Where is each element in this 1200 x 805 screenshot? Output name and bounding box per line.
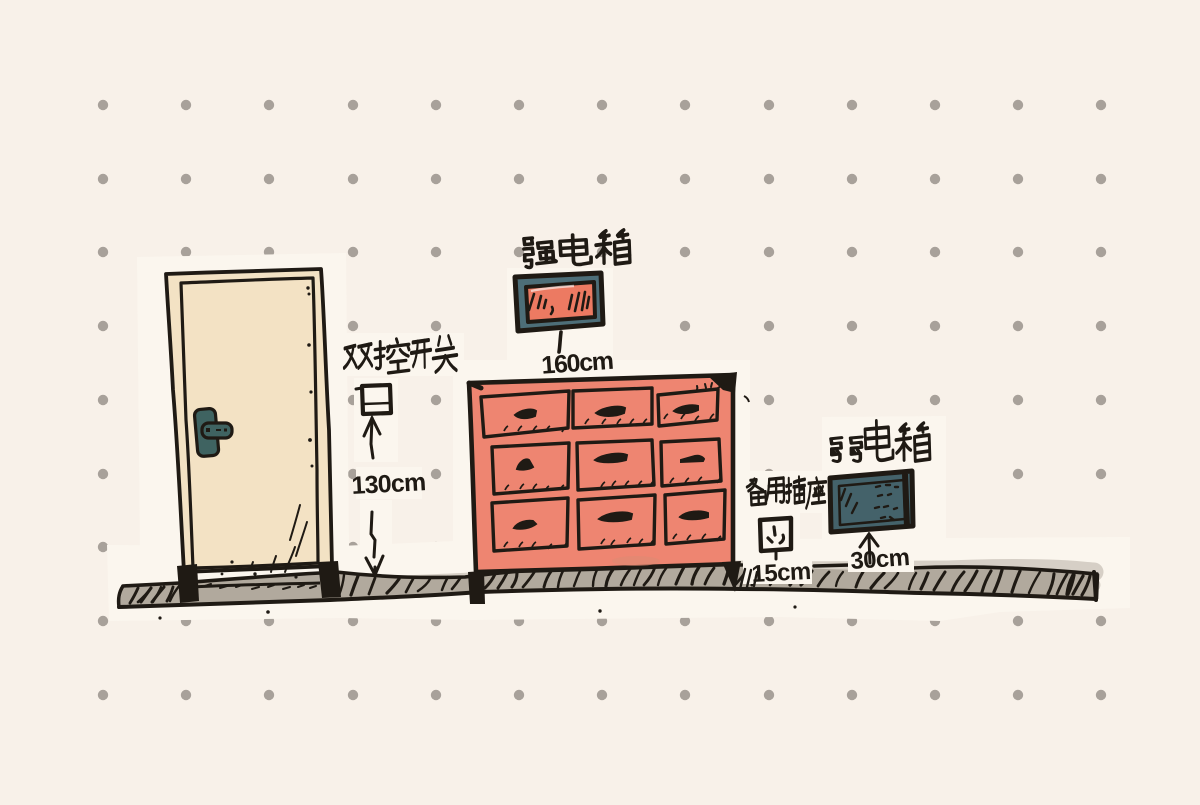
svg-text:15cm: 15cm (751, 558, 811, 588)
svg-text:30cm: 30cm (850, 544, 911, 575)
svg-text:160cm: 160cm (540, 347, 613, 380)
svg-text:130cm: 130cm (351, 468, 426, 500)
